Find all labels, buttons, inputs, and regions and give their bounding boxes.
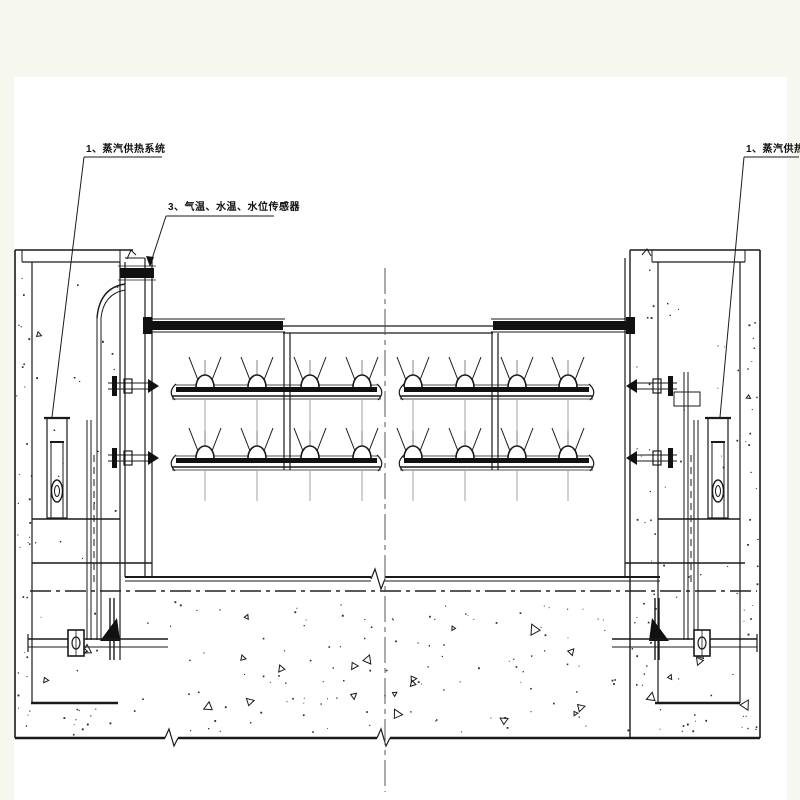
label-steam-system-left: 1、蒸汽供热系统	[86, 142, 166, 155]
technical-drawing: 1、蒸汽供热系统 3、气温、水温、水位传感器 1、蒸汽供热系统	[0, 0, 800, 800]
sensor-conduit	[118, 266, 156, 280]
label-steam-system-right: 1、蒸汽供热系统	[746, 142, 800, 155]
drawing-canvas: 1、蒸汽供热系统 3、气温、水温、水位传感器 1、蒸汽供热系统	[0, 0, 800, 800]
label-sensors: 3、气温、水温、水位传感器	[168, 200, 301, 213]
drawing-sheet	[14, 77, 787, 800]
